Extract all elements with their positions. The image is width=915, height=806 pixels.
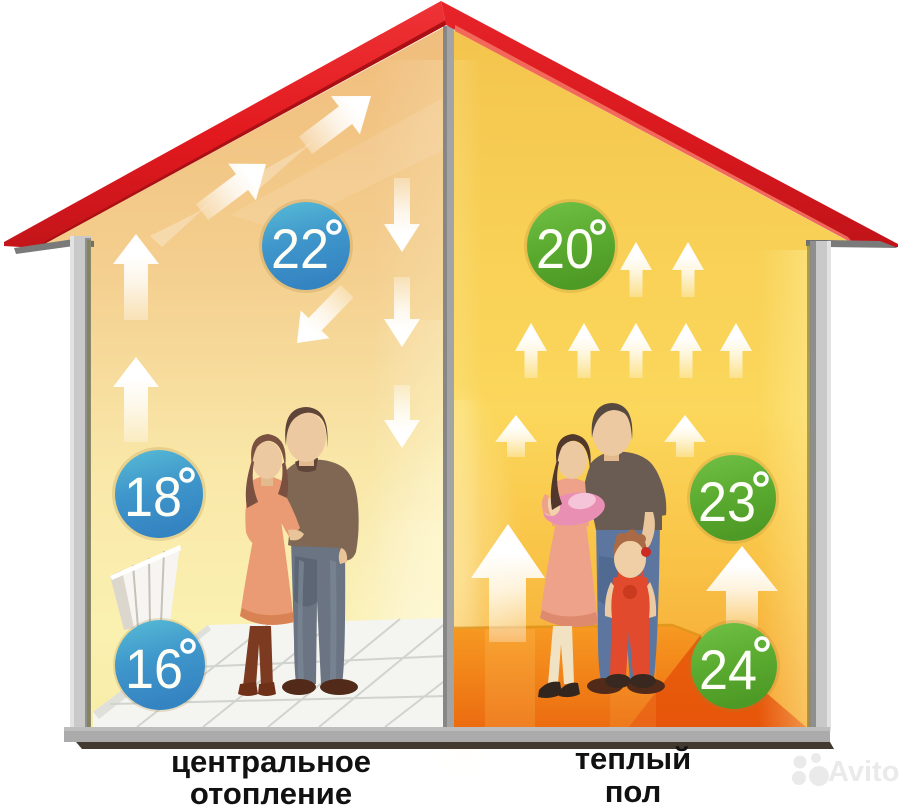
- svg-text:теплый: теплый: [575, 741, 691, 776]
- svg-text:20: 20: [536, 217, 594, 280]
- svg-text:24: 24: [699, 638, 757, 701]
- svg-text:Avito: Avito: [828, 756, 899, 788]
- svg-text:пол: пол: [605, 774, 662, 806]
- svg-text:22: 22: [271, 217, 329, 280]
- svg-text:16: 16: [125, 637, 183, 700]
- svg-text:18: 18: [124, 465, 182, 528]
- svg-text:центральное: центральное: [171, 744, 371, 779]
- svg-text:23: 23: [698, 470, 756, 533]
- svg-text:отопление: отопление: [190, 776, 352, 806]
